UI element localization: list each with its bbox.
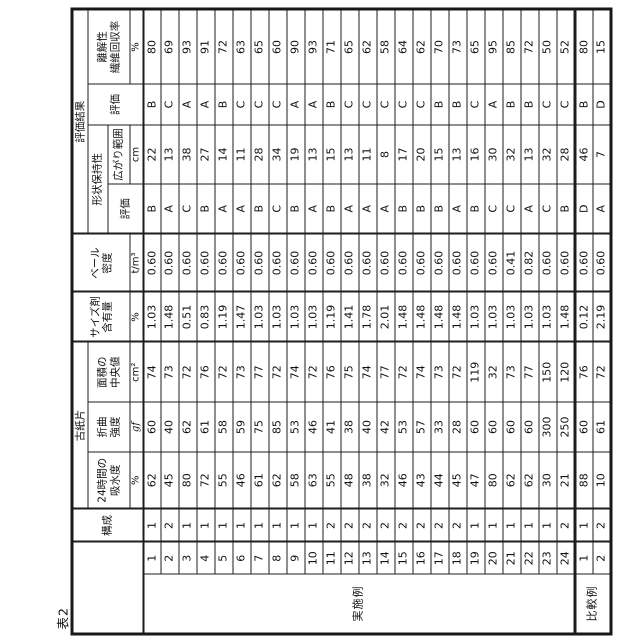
table-row: 2116260731.030.41C32B85 — [503, 9, 521, 634]
cell-kousei: 1 — [287, 509, 305, 542]
cell-overall-eval: B — [323, 84, 341, 125]
table-row: 2018060321.030.60C30A95 — [485, 9, 503, 634]
cell-fiber-recovery: 93 — [305, 9, 323, 84]
cell-absorb: 46 — [395, 452, 413, 509]
cell-bend: 75 — [251, 402, 269, 452]
cell-overall-eval: A — [305, 84, 323, 125]
cell-absorb: 43 — [413, 452, 431, 509]
cell-bale-density: 0.60 — [395, 234, 413, 292]
unit-size-content: % — [130, 292, 143, 342]
cell-bale-density: 0.60 — [161, 234, 179, 292]
cell-bale-density: 0.60 — [593, 234, 611, 292]
table-row: 比較例118860760.120.60D46B80 — [575, 9, 593, 634]
header-absorb: 24時間の 吸水度 — [88, 452, 130, 509]
cell-size-content: 1.41 — [341, 292, 359, 342]
cell-size-content: 2.01 — [377, 292, 395, 342]
cell-row-no: 1 — [575, 542, 593, 574]
cell-row-no: 1 — [143, 542, 161, 574]
cell-kousei: 1 — [215, 509, 233, 542]
cell-kousei: 2 — [161, 509, 179, 542]
cell-bale-density: 0.60 — [377, 234, 395, 292]
cell-fiber-recovery: 71 — [323, 9, 341, 84]
cell-fiber-recovery: 65 — [341, 9, 359, 84]
cell-absorb: 62 — [269, 452, 287, 509]
cell-kousei: 1 — [539, 509, 557, 542]
cell-bale-density: 0.60 — [197, 234, 215, 292]
table-row: 1624357741.480.60B20C62 — [413, 9, 431, 634]
cell-absorb: 10 — [593, 452, 611, 509]
cell-overall-eval: D — [593, 84, 611, 125]
cell-overall-eval: B — [143, 84, 161, 125]
cell-row-no: 6 — [233, 542, 251, 574]
cell-shape-eval: C — [503, 184, 521, 234]
cell-area: 119 — [467, 342, 485, 402]
cell-area: 76 — [575, 342, 593, 402]
cell-fiber-recovery: 62 — [413, 9, 431, 84]
cell-shape-eval: A — [341, 184, 359, 234]
cell-spread: 13 — [305, 125, 323, 184]
cell-area: 72 — [179, 342, 197, 402]
cell-kousei: 1 — [233, 509, 251, 542]
cell-row-no: 13 — [359, 542, 377, 574]
cell-overall-eval: A — [197, 84, 215, 125]
cell-size-content: 1.48 — [449, 292, 467, 342]
cell-shape-eval: B — [287, 184, 305, 234]
cell-row-no: 17 — [431, 542, 449, 574]
cell-shape-eval: B — [431, 184, 449, 234]
cell-shape-eval: D — [575, 184, 593, 234]
cell-absorb: 63 — [305, 452, 323, 509]
cell-bend: 40 — [359, 402, 377, 452]
header-size-content: サイズ剤 含有量 — [72, 292, 130, 342]
cell-kousei: 2 — [413, 509, 431, 542]
cell-shape-eval: B — [413, 184, 431, 234]
cell-bale-density: 0.60 — [233, 234, 251, 292]
cell-kousei: 1 — [269, 509, 287, 542]
cell-bend: 60 — [485, 402, 503, 452]
cell-overall-eval: C — [395, 84, 413, 125]
cell-shape-eval: B — [467, 184, 485, 234]
cell-bale-density: 0.60 — [413, 234, 431, 292]
cell-kousei: 2 — [359, 509, 377, 542]
cell-absorb: 58 — [287, 452, 305, 509]
cell-bale-density: 0.60 — [269, 234, 287, 292]
cell-area: 74 — [359, 342, 377, 402]
cell-area: 72 — [395, 342, 413, 402]
cell-shape-eval: C — [485, 184, 503, 234]
table-row: 1224838751.410.60A13C65 — [341, 9, 359, 634]
cell-spread: 28 — [557, 125, 575, 184]
cell-fiber-recovery: 64 — [395, 9, 413, 84]
cell-row-no: 16 — [413, 542, 431, 574]
cell-bend: 250 — [557, 402, 575, 452]
table-row: 19147601191.030.60B16C65 — [467, 9, 485, 634]
table-row: 1524653721.480.60B17C64 — [395, 9, 413, 634]
cell-area: 72 — [215, 342, 233, 402]
cell-spread: 11 — [359, 125, 377, 184]
cell-bend: 41 — [323, 402, 341, 452]
header-group-shape-retention: 形状保持性 — [88, 125, 108, 234]
cell-row-no: 4 — [197, 542, 215, 574]
cell-kousei: 2 — [395, 509, 413, 542]
cell-row-no: 15 — [395, 542, 413, 574]
cell-absorb: 55 — [323, 452, 341, 509]
cell-absorb: 45 — [449, 452, 467, 509]
cell-bale-density: 0.82 — [521, 234, 539, 292]
table-row: 1724433731.480.60B15B70 — [431, 9, 449, 634]
cell-fiber-recovery: 93 — [179, 9, 197, 84]
cell-kousei: 1 — [485, 509, 503, 542]
cell-absorb: 48 — [341, 452, 359, 509]
cell-spread: 30 — [485, 125, 503, 184]
cell-bale-density: 0.60 — [305, 234, 323, 292]
table-header: 構成 古紙片 サイズ剤 含有量 ベール 密度 評価結果 24時間の 吸 — [72, 9, 143, 634]
rotated-table-block: 表2 構成 古紙片 サイズ剤 含有量 ベール — [53, 11, 625, 636]
cell-bale-density: 0.60 — [431, 234, 449, 292]
cell-bale-density: 0.60 — [143, 234, 161, 292]
cell-size-content: 1.03 — [467, 292, 485, 342]
cell-bale-density: 0.60 — [323, 234, 341, 292]
cell-area: 73 — [233, 342, 251, 402]
cell-kousei: 1 — [251, 509, 269, 542]
table-row: 1323840741.780.60A11C62 — [359, 9, 377, 634]
cell-shape-eval: A — [161, 184, 179, 234]
header-overall-eval: 評価 — [88, 84, 143, 125]
cell-absorb: 45 — [161, 452, 179, 509]
cell-size-content: 1.03 — [269, 292, 287, 342]
cell-overall-eval: C — [341, 84, 359, 125]
cell-bale-density: 0.60 — [485, 234, 503, 292]
cell-fiber-recovery: 69 — [161, 9, 179, 84]
table-row: 実施例116260741.030.60B22B80 — [143, 9, 161, 634]
document-page: 表2 構成 古紙片 サイズ剤 含有量 ベール — [0, 0, 640, 640]
cell-area: 74 — [287, 342, 305, 402]
header-area: 面積の 中央値 — [88, 342, 130, 402]
cell-absorb: 47 — [467, 452, 485, 509]
cell-absorb: 44 — [431, 452, 449, 509]
cell-row-no: 9 — [287, 542, 305, 574]
cell-area: 75 — [341, 342, 359, 402]
table-row: 1423242772.010.60A8C58 — [377, 9, 395, 634]
cell-spread: 15 — [431, 125, 449, 184]
cell-area: 74 — [413, 342, 431, 402]
cell-shape-eval: B — [557, 184, 575, 234]
cell-area: 72 — [305, 342, 323, 402]
table-row: 318062720.510.60C38A93 — [179, 9, 197, 634]
cell-bale-density: 0.60 — [449, 234, 467, 292]
cell-kousei: 1 — [143, 509, 161, 542]
cell-bend: 300 — [539, 402, 557, 452]
cell-absorb: 62 — [143, 452, 161, 509]
cell-size-content: 1.03 — [305, 292, 323, 342]
cell-spread: 13 — [449, 125, 467, 184]
unit-fiber-recovery: % — [130, 9, 143, 84]
cell-absorb: 80 — [179, 452, 197, 509]
header-shape-eval: 評価 — [108, 184, 143, 234]
cell-overall-eval: C — [269, 84, 287, 125]
cell-spread: 22 — [143, 125, 161, 184]
cell-row-no: 18 — [449, 542, 467, 574]
cell-bend: 60 — [575, 402, 593, 452]
cell-shape-eval: C — [539, 184, 557, 234]
cell-shape-eval: A — [305, 184, 323, 234]
cell-overall-eval: C — [233, 84, 251, 125]
cell-fiber-recovery: 85 — [503, 9, 521, 84]
cell-fiber-recovery: 65 — [467, 9, 485, 84]
cell-bend: 33 — [431, 402, 449, 452]
cell-size-content: 1.03 — [503, 292, 521, 342]
cell-spread: 27 — [197, 125, 215, 184]
cell-absorb: 62 — [521, 452, 539, 509]
cell-size-content: 1.48 — [557, 292, 575, 342]
cell-row-no: 21 — [503, 542, 521, 574]
cell-overall-eval: A — [287, 84, 305, 125]
header-disintegration: 離解性 繊維回収率 — [88, 9, 130, 84]
cell-shape-eval: B — [323, 184, 341, 234]
cell-kousei: 2 — [449, 509, 467, 542]
table-row: 1824528721.480.60A13B73 — [449, 9, 467, 634]
table-row: 2216260771.030.82A13B72 — [521, 9, 539, 634]
header-group-eval-result: 評価結果 — [72, 9, 88, 234]
cell-spread: 13 — [161, 125, 179, 184]
cell-bale-density: 0.60 — [359, 234, 377, 292]
cell-kousei: 1 — [305, 509, 323, 542]
cell-shape-eval: B — [197, 184, 215, 234]
cell-bend: 61 — [197, 402, 215, 452]
cell-kousei: 2 — [431, 509, 449, 542]
cell-bend: 53 — [395, 402, 413, 452]
table-row: 221061722.190.60A7D15 — [593, 9, 611, 634]
cell-bend: 38 — [341, 402, 359, 452]
table-row: 816285721.030.60C34C60 — [269, 9, 287, 634]
header-bend: 折曲 強度 — [88, 402, 130, 452]
cell-bale-density: 0.60 — [287, 234, 305, 292]
cell-bale-density: 0.60 — [539, 234, 557, 292]
cell-size-content: 1.03 — [251, 292, 269, 342]
unit-area: cm² — [130, 342, 143, 402]
cell-fiber-recovery: 50 — [539, 9, 557, 84]
cell-spread: 17 — [395, 125, 413, 184]
cell-row-no: 24 — [557, 542, 575, 574]
cell-spread: 7 — [593, 125, 611, 184]
header-spread-range: 広がり範囲 — [108, 125, 130, 184]
cell-overall-eval: B — [215, 84, 233, 125]
cell-bale-density: 0.60 — [467, 234, 485, 292]
cell-kousei: 1 — [503, 509, 521, 542]
table-row: 716175771.030.60B28C65 — [251, 9, 269, 634]
cell-size-content: 1.48 — [395, 292, 413, 342]
table-row: 242212501201.480.60B28C52 — [557, 9, 575, 634]
cell-area: 72 — [269, 342, 287, 402]
cell-shape-eval: A — [233, 184, 251, 234]
cell-area: 77 — [251, 342, 269, 402]
cell-fiber-recovery: 90 — [287, 9, 305, 84]
cell-shape-eval: C — [179, 184, 197, 234]
cell-area: 72 — [593, 342, 611, 402]
cell-bend: 61 — [593, 402, 611, 452]
cell-shape-eval: B — [251, 184, 269, 234]
cell-bale-density: 0.60 — [575, 234, 593, 292]
cell-area: 72 — [449, 342, 467, 402]
table-row: 231303001501.030.60C32C50 — [539, 9, 557, 634]
cell-fiber-recovery: 65 — [251, 9, 269, 84]
cell-size-content: 0.83 — [197, 292, 215, 342]
cell-spread: 14 — [215, 125, 233, 184]
cell-kousei: 2 — [341, 509, 359, 542]
cell-row-no: 22 — [521, 542, 539, 574]
cell-absorb: 38 — [359, 452, 377, 509]
cell-area: 76 — [323, 342, 341, 402]
cell-size-content: 0.51 — [179, 292, 197, 342]
unit-spread: cm — [130, 125, 143, 184]
cell-size-content: 2.19 — [593, 292, 611, 342]
cell-shape-eval: A — [215, 184, 233, 234]
cell-fiber-recovery: 72 — [215, 9, 233, 84]
table-row: 1125541761.190.60B15B71 — [323, 9, 341, 634]
cell-kousei: 2 — [557, 509, 575, 542]
cell-fiber-recovery: 70 — [431, 9, 449, 84]
cell-absorb: 32 — [377, 452, 395, 509]
cell-absorb: 72 — [197, 452, 215, 509]
cell-spread: 11 — [233, 125, 251, 184]
cell-shape-eval: B — [143, 184, 161, 234]
cell-area: 32 — [485, 342, 503, 402]
cell-row-no: 8 — [269, 542, 287, 574]
cell-absorb: 80 — [485, 452, 503, 509]
cell-row-no: 20 — [485, 542, 503, 574]
cell-shape-eval: A — [359, 184, 377, 234]
cell-fiber-recovery: 52 — [557, 9, 575, 84]
header-blank-cell — [72, 542, 143, 634]
cell-row-no: 3 — [179, 542, 197, 574]
cell-bend: 60 — [503, 402, 521, 452]
cell-overall-eval: C — [251, 84, 269, 125]
unit-bend: gf — [130, 402, 143, 452]
table-row: 224540731.480.60A13C69 — [161, 9, 179, 634]
cell-spread: 16 — [467, 125, 485, 184]
cell-row-no: 19 — [467, 542, 485, 574]
cell-fiber-recovery: 62 — [359, 9, 377, 84]
cell-bend: 57 — [413, 402, 431, 452]
cell-overall-eval: C — [557, 84, 575, 125]
cell-overall-eval: B — [449, 84, 467, 125]
cell-bend: 46 — [305, 402, 323, 452]
cell-kousei: 1 — [467, 509, 485, 542]
cell-row-no: 11 — [323, 542, 341, 574]
cell-bend: 40 — [161, 402, 179, 452]
cell-kousei: 1 — [179, 509, 197, 542]
cell-bale-density: 0.41 — [503, 234, 521, 292]
table-caption: 表2 — [53, 11, 69, 636]
cell-spread: 28 — [251, 125, 269, 184]
cell-shape-eval: A — [377, 184, 395, 234]
cell-bale-density: 0.60 — [179, 234, 197, 292]
cell-shape-eval: A — [521, 184, 539, 234]
cell-area: 77 — [377, 342, 395, 402]
table-row: 515558721.190.60A14B72 — [215, 9, 233, 634]
cell-area: 77 — [521, 342, 539, 402]
header-group-koshihen: 古紙片 — [72, 342, 88, 509]
cell-kousei: 2 — [377, 509, 395, 542]
cell-size-content: 1.03 — [485, 292, 503, 342]
cell-bend: 59 — [233, 402, 251, 452]
cell-absorb: 88 — [575, 452, 593, 509]
cell-fiber-recovery: 63 — [233, 9, 251, 84]
cell-fiber-recovery: 80 — [143, 9, 161, 84]
cell-kousei: 2 — [323, 509, 341, 542]
table-row: 1016346721.030.60A13A93 — [305, 9, 323, 634]
cell-overall-eval: B — [431, 84, 449, 125]
cell-bend: 58 — [215, 402, 233, 452]
cell-spread: 46 — [575, 125, 593, 184]
cell-fiber-recovery: 95 — [485, 9, 503, 84]
cell-size-content: 1.47 — [233, 292, 251, 342]
cell-row-no: 10 — [305, 542, 323, 574]
cell-spread: 32 — [503, 125, 521, 184]
cell-fiber-recovery: 60 — [269, 9, 287, 84]
cell-shape-eval: A — [449, 184, 467, 234]
cell-fiber-recovery: 80 — [575, 9, 593, 84]
cell-size-content: 1.48 — [431, 292, 449, 342]
cell-bend: 28 — [449, 402, 467, 452]
cell-row-no: 2 — [593, 542, 611, 574]
cell-absorb: 30 — [539, 452, 557, 509]
group-label: 比較例 — [575, 574, 611, 634]
cell-overall-eval: B — [503, 84, 521, 125]
cell-absorb: 55 — [215, 452, 233, 509]
cell-overall-eval: C — [377, 84, 395, 125]
cell-overall-eval: B — [575, 84, 593, 125]
header-kousei: 構成 — [72, 509, 143, 542]
cell-kousei: 1 — [575, 509, 593, 542]
cell-size-content: 1.03 — [539, 292, 557, 342]
cell-spread: 20 — [413, 125, 431, 184]
cell-overall-eval: C — [467, 84, 485, 125]
group-label: 実施例 — [143, 574, 575, 634]
cell-bend: 53 — [287, 402, 305, 452]
cell-row-no: 23 — [539, 542, 557, 574]
cell-bend: 42 — [377, 402, 395, 452]
cell-fiber-recovery: 73 — [449, 9, 467, 84]
cell-overall-eval: C — [161, 84, 179, 125]
header-bale-density: ベール 密度 — [72, 234, 130, 292]
cell-size-content: 1.19 — [215, 292, 233, 342]
cell-shape-eval: B — [395, 184, 413, 234]
cell-row-no: 5 — [215, 542, 233, 574]
cell-row-no: 14 — [377, 542, 395, 574]
cell-bale-density: 0.60 — [215, 234, 233, 292]
cell-bend: 62 — [179, 402, 197, 452]
cell-bend: 85 — [269, 402, 287, 452]
cell-size-content: 1.03 — [143, 292, 161, 342]
cell-row-no: 7 — [251, 542, 269, 574]
cell-fiber-recovery: 72 — [521, 9, 539, 84]
table-row: 614659731.470.60A11C63 — [233, 9, 251, 634]
cell-overall-eval: A — [485, 84, 503, 125]
table-row: 417261760.830.60B27A91 — [197, 9, 215, 634]
cell-spread: 38 — [179, 125, 197, 184]
cell-area: 73 — [431, 342, 449, 402]
cell-shape-eval: A — [593, 184, 611, 234]
cell-spread: 8 — [377, 125, 395, 184]
cell-kousei: 1 — [521, 509, 539, 542]
cell-size-content: 1.19 — [323, 292, 341, 342]
cell-area: 76 — [197, 342, 215, 402]
patent-data-table: 構成 古紙片 サイズ剤 含有量 ベール 密度 評価結果 24時間の 吸 — [71, 7, 613, 635]
cell-area: 120 — [557, 342, 575, 402]
cell-absorb: 21 — [557, 452, 575, 509]
cell-area: 150 — [539, 342, 557, 402]
